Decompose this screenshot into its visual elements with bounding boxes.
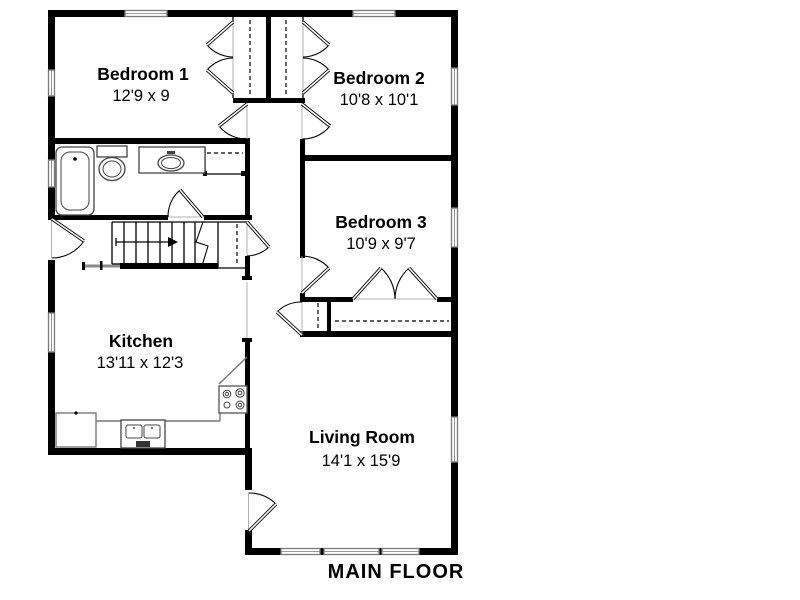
- refrigerator-counter: [56, 411, 96, 447]
- stair-direction-arrow: [116, 237, 178, 247]
- stair-railing: [82, 261, 120, 270]
- floor-plan-drawing: Bedroom 1 12'9 x 9 Bedroom 2 10'8 x 10'1…: [0, 0, 800, 600]
- window-bedroom1-top: [125, 11, 167, 17]
- living-room-entry-door: [249, 492, 277, 531]
- kitchen-dims: 13'11 x 12'3: [97, 354, 184, 372]
- kitchen-name: Kitchen: [109, 331, 173, 351]
- faucet: [167, 151, 175, 154]
- bedroom2-door: [302, 103, 330, 139]
- bedroom3-closet-doors: [353, 268, 437, 299]
- tub-drain: [73, 157, 77, 161]
- window-living-bottom-1: [281, 549, 320, 555]
- kitchen-sink: [121, 420, 165, 448]
- stove: [219, 386, 247, 413]
- bedroom2-closet-doors: [303, 22, 329, 93]
- staircase: [82, 222, 218, 270]
- room-label-bedroom1: Bedroom 1 12'9 x 9: [97, 64, 189, 105]
- hall-closet: [218, 222, 248, 268]
- closet-details: [203, 17, 449, 338]
- window-bedroom2-right: [452, 68, 458, 105]
- bedroom3-dims: 10'9 x 9'7: [346, 235, 416, 253]
- toilet: [97, 146, 127, 181]
- sink-faucet: [136, 441, 150, 447]
- side-entry-door: [52, 219, 85, 258]
- room-label-kitchen: Kitchen 13'11 x 12'3: [97, 331, 184, 372]
- bedroom1-door: [219, 103, 247, 139]
- window-living-bottom-2: [324, 549, 379, 555]
- bathroom-door: [168, 190, 204, 217]
- vanity-sink: [139, 147, 205, 173]
- floor-plan-page: Bedroom 1 12'9 x 9 Bedroom 2 10'8 x 10'1…: [0, 0, 800, 600]
- floor-title: MAIN FLOOR: [328, 561, 465, 583]
- window-living-right: [452, 417, 458, 462]
- bedroom3-name: Bedroom 3: [335, 212, 427, 232]
- stair-break-line: [196, 222, 208, 266]
- bathtub: [56, 147, 94, 215]
- bedroom1-name: Bedroom 1: [97, 64, 189, 84]
- room-label-living: Living Room 14'1 x 15'9: [309, 427, 415, 470]
- living-dims: 14'1 x 15'9: [322, 452, 401, 470]
- window-bedroom3-right: [452, 208, 458, 247]
- bedroom2-dims: 10'8 x 10'1: [340, 91, 419, 109]
- bedroom1-closet-doors: [207, 22, 233, 93]
- window-kitchen-left: [49, 313, 55, 352]
- bedroom1-dims: 12'9 x 9: [112, 87, 169, 105]
- bedroom3-door: [302, 256, 329, 293]
- hall-closet-door: [247, 222, 269, 256]
- living-name: Living Room: [309, 427, 415, 447]
- bedroom2-name: Bedroom 2: [333, 68, 425, 88]
- window-bedroom1-left: [49, 70, 55, 96]
- room-label-bedroom3: Bedroom 3 10'9 x 9'7: [335, 212, 427, 253]
- window-bedroom2-top: [353, 11, 395, 17]
- window-bathroom-left: [49, 160, 55, 187]
- small-closet-door: [277, 302, 302, 335]
- window-living-bottom-3: [382, 549, 419, 555]
- linen-closet: [203, 148, 245, 176]
- room-label-bedroom2: Bedroom 2 10'8 x 10'1: [333, 68, 425, 109]
